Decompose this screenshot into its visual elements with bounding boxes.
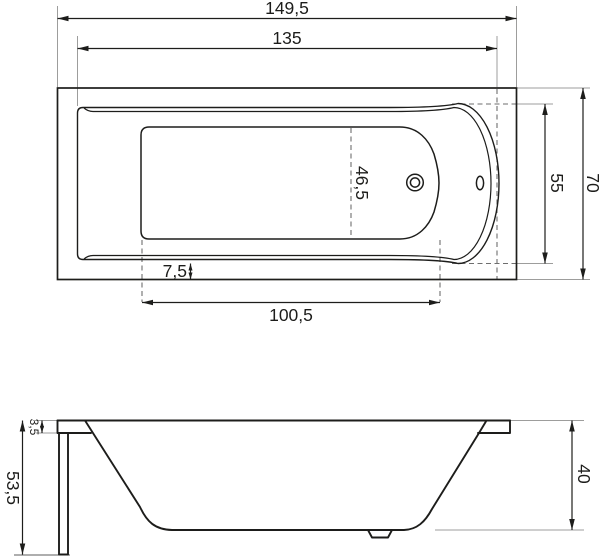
dim-rim-inner-width: 55 [545,104,567,264]
dim-floor-width-center: 46,5 [352,166,372,200]
dim-floor-length: 100,5 [142,303,440,326]
side-view: 53,5 3,5 40 [3,419,594,555]
dim-total-height: 53,5 [3,421,23,555]
dim-inner-depth: 40 [572,421,594,531]
drain-bump [368,530,392,538]
dim-rim-inner-width-label: 55 [547,173,567,192]
overflow-icon [476,176,483,190]
extension-lines-side-view [14,421,584,556]
tub-floor-outline [141,127,439,239]
dim-floor-width-center-label: 46,5 [352,166,372,200]
dim-rim-inner-length-label: 135 [272,28,301,48]
dim-floor-length-label: 100,5 [269,305,313,325]
dim-rim-lip-height-label: 3,5 [27,419,41,436]
dim-overall-length-label: 149,5 [265,0,309,18]
tub-side-profile [58,421,511,555]
dim-rim-edge-offset: 7,5 [163,261,191,281]
tub-bowl-profile [85,421,487,531]
projection-dashed-lines [142,89,517,302]
dim-overall-width: 70 [583,88,600,280]
technical-drawing-canvas: 149,5 135 70 55 46,5 7,5 100,5 [0,0,600,558]
dim-total-height-label: 53,5 [3,471,23,505]
top-view: 149,5 135 70 55 46,5 7,5 100,5 [58,0,600,325]
dim-inner-depth-label: 40 [574,464,594,484]
dim-rim-inner-length: 135 [78,28,498,49]
dim-overall-width-label: 70 [583,173,600,193]
dim-overall-length: 149,5 [58,0,517,19]
drain-icon [407,174,424,191]
dim-rim-lip-height: 3,5 [27,419,42,436]
bathtub-dimension-drawing: 149,5 135 70 55 46,5 7,5 100,5 [0,0,600,558]
dim-rim-edge-offset-label: 7,5 [163,261,187,281]
tub-rim-inner-lip [84,108,491,260]
tub-outer-edge [58,88,517,280]
support-leg [59,433,68,555]
